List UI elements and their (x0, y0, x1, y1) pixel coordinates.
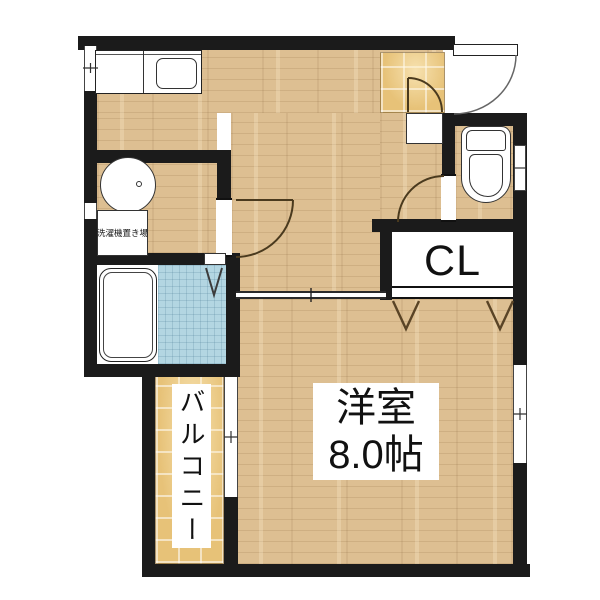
wall (84, 150, 231, 163)
bathroom-blue-tile (158, 265, 226, 364)
wall (217, 150, 231, 198)
wall (84, 219, 97, 377)
closet-label: CL (396, 234, 509, 288)
toilet-bowl (469, 154, 503, 197)
main-room-label-box: 洋室 8.0帖 (313, 383, 439, 480)
bathroom-door-sill (204, 253, 226, 265)
room-divider-symbol (236, 291, 386, 299)
wall (84, 364, 240, 377)
wall (142, 564, 530, 577)
bathtub-inner-rim (103, 272, 153, 358)
wall (84, 36, 97, 46)
wall (84, 91, 97, 203)
kitchen-sink (156, 58, 197, 89)
toilet-tank (466, 130, 506, 151)
hall-floor-left (97, 113, 217, 152)
wall (142, 368, 155, 577)
wall (442, 113, 455, 174)
wall (380, 219, 392, 300)
toilet (461, 126, 511, 203)
main-room-window (513, 365, 527, 463)
bathtub (99, 268, 157, 362)
wall (450, 113, 527, 126)
entrance-door-arc (454, 55, 516, 114)
wall (224, 497, 238, 564)
washbasin (100, 157, 156, 213)
toilet-window (514, 145, 526, 191)
floorplan: 洗濯機置き場 洋室 8.0帖 CL バルコニー (0, 0, 600, 600)
washbasin-drain (136, 181, 142, 187)
wall (513, 463, 527, 577)
counter-edge-line (96, 54, 201, 55)
balcony-sliding-window (224, 377, 238, 497)
kitchen-counter (95, 50, 202, 94)
wall (78, 36, 455, 50)
washroom-door-opening (216, 198, 232, 257)
wall (226, 253, 240, 377)
washroom-window (84, 203, 97, 219)
washing-machine-label: 洗濯機置き場 (97, 227, 148, 239)
balcony-label: バルコニー (173, 384, 210, 548)
entrance-door-leaf (453, 44, 518, 56)
main-room-name: 洋室 (336, 385, 416, 432)
genkan-step (406, 113, 443, 144)
counter-divider (143, 51, 144, 93)
balcony-label-box: バルコニー (172, 384, 211, 548)
hall-floor (231, 113, 386, 299)
washing-machine-space: 洗濯機置き場 (97, 210, 148, 256)
toilet-door-opening (441, 174, 456, 222)
genkan-tile-floor (380, 52, 445, 113)
main-room-size: 8.0帖 (328, 432, 424, 479)
